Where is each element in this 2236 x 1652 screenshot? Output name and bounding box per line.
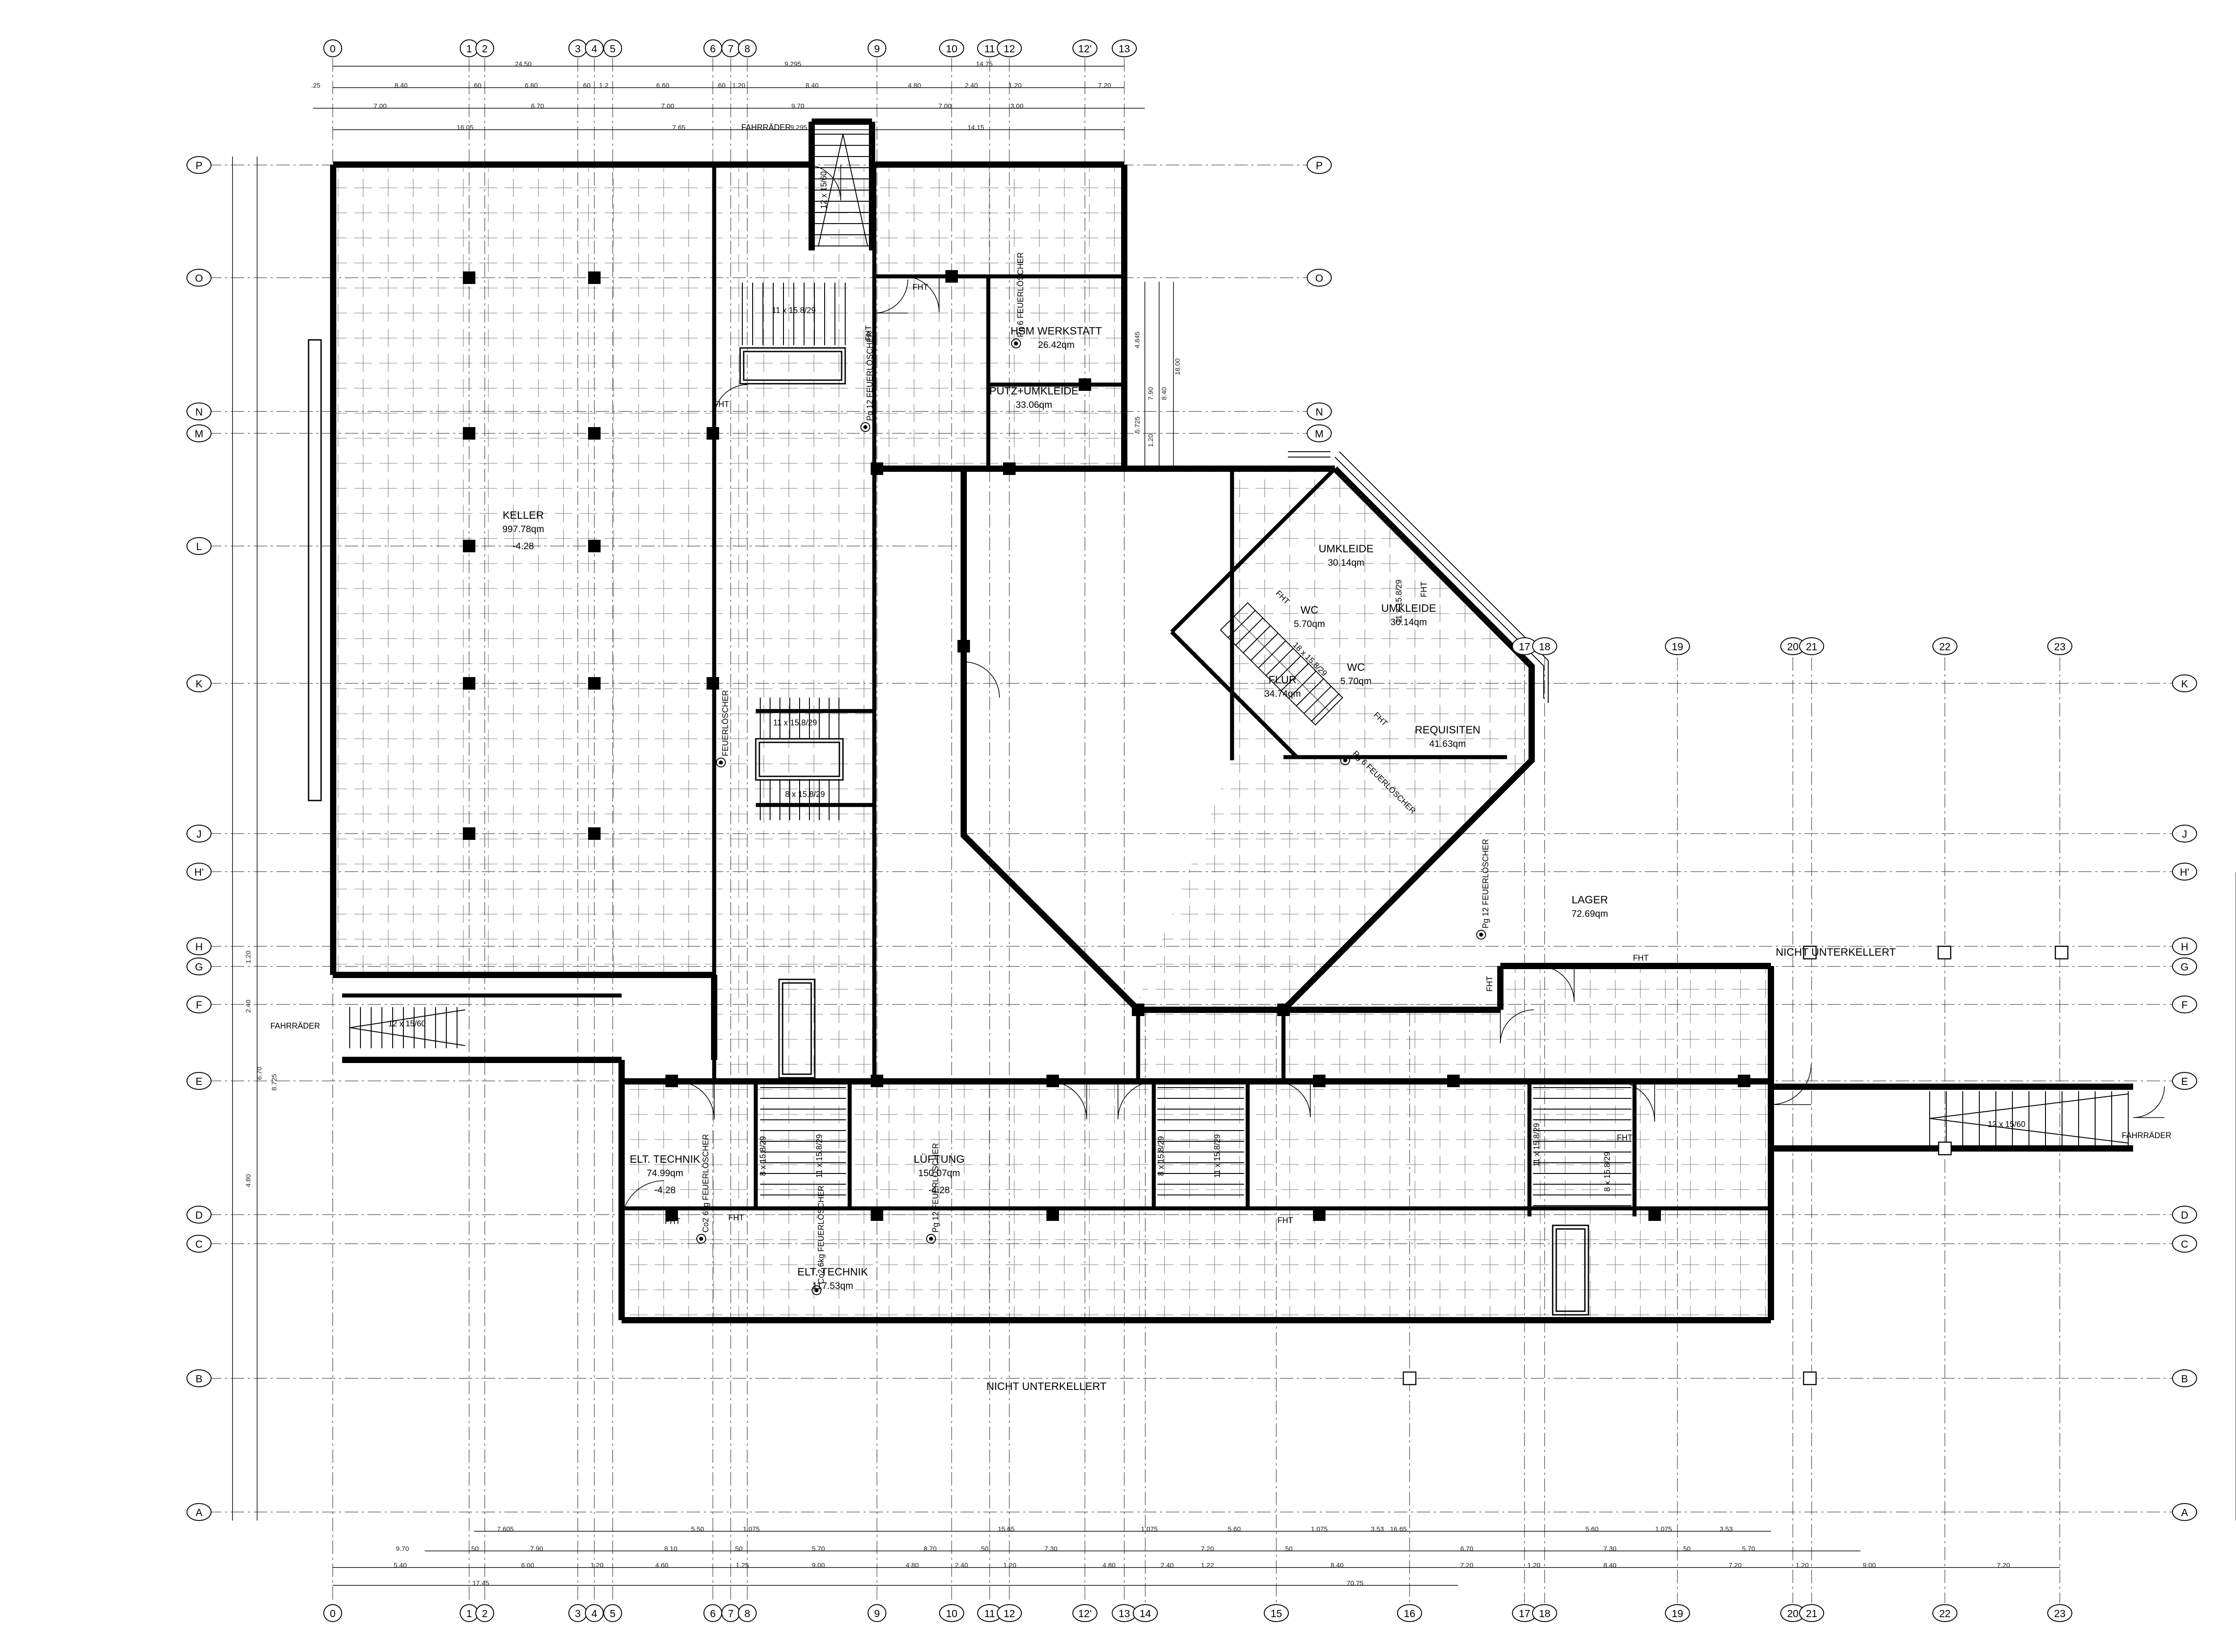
label: 4.60 xyxy=(655,1562,668,1569)
grid-bubble-label: A xyxy=(195,1507,203,1518)
label: 8.40 xyxy=(394,82,407,89)
column-hollow xyxy=(1403,1372,1416,1385)
grid-bubble-label: E xyxy=(2181,1076,2188,1087)
column-solid xyxy=(1313,1208,1326,1221)
grid-bubble-label: D xyxy=(2181,1209,2189,1221)
grid-bubble-B: B xyxy=(187,1370,211,1387)
label: 4.80 xyxy=(1102,1562,1115,1569)
grid-bubble-19: 19 xyxy=(1665,638,1690,655)
grid-bubble-label: 6 xyxy=(710,43,716,55)
label: 1.2 xyxy=(599,82,609,89)
grid-bubble-A: A xyxy=(187,1504,211,1521)
grid-bubble-P: P xyxy=(1307,157,1331,174)
label: 8.10 xyxy=(664,1545,677,1553)
label: FEUERLÖSCHER xyxy=(721,690,730,756)
label: 8 x 15.8/29 xyxy=(758,1136,767,1176)
grid-bubble-22: 22 xyxy=(1933,638,1957,655)
grid-bubble-O: O xyxy=(187,269,211,286)
grid-bubble-label: O xyxy=(1315,272,1323,284)
grid-bubble-label: 11 xyxy=(984,43,995,55)
label: 8 x 15.8/29 xyxy=(785,790,825,799)
label: 7.90 xyxy=(1147,387,1155,400)
grid-bubble-label: 5 xyxy=(610,1608,616,1619)
label: 5.70qm xyxy=(1294,619,1325,629)
label: 1.20 xyxy=(732,82,745,89)
label: 9.295 xyxy=(790,124,807,131)
label: PUTZ+UMKLEIDE xyxy=(989,385,1078,397)
label: .25 xyxy=(311,82,321,89)
grid-bubble-H': H' xyxy=(2172,863,2197,880)
column-solid xyxy=(707,427,719,440)
grid-bubble-label: D xyxy=(195,1209,203,1221)
grid-bubble-M: M xyxy=(1307,425,1331,442)
label: NICHT UNTERKELLERT xyxy=(987,1381,1107,1393)
label: FHT xyxy=(1633,953,1649,962)
label: Co2 6kg FEUERLÖSCHER xyxy=(701,1134,710,1233)
label: 7.20 xyxy=(1997,1562,2010,1569)
grid-bubble-label: J xyxy=(2182,828,2187,840)
label: 6.70 xyxy=(531,102,544,110)
label: KELLER xyxy=(503,509,544,521)
grid-bubble-19: 19 xyxy=(1665,1605,1690,1622)
label: 41.63qm xyxy=(1429,739,1466,749)
grid-bubble-label: 2 xyxy=(482,43,488,55)
label: 8.70 xyxy=(923,1545,936,1553)
grid-bubble-label: H xyxy=(2181,941,2189,953)
column-solid xyxy=(1447,1075,1460,1087)
label: WC xyxy=(1347,661,1365,674)
grid-bubble-8: 8 xyxy=(738,1605,756,1622)
grid-bubble-label: 19 xyxy=(1672,641,1683,652)
grid-bubble-label: K xyxy=(2181,678,2188,690)
grid-bubble-label: 3 xyxy=(575,43,581,55)
label: 2.40 xyxy=(245,1000,252,1012)
label: UMKLEIDE xyxy=(1381,602,1436,614)
column-solid xyxy=(665,1075,678,1087)
grid-bubble-label: 12 xyxy=(1004,43,1015,55)
grid-bubble-2: 2 xyxy=(476,1605,494,1622)
column-solid xyxy=(871,1208,883,1221)
grid-bubble-label: 6 xyxy=(710,1608,716,1619)
grid-bubble-K: K xyxy=(187,675,211,692)
label: 7.00 xyxy=(661,102,674,110)
column-solid xyxy=(1079,378,1091,391)
grid-bubble-label: 5 xyxy=(610,43,616,55)
label: 4.845 xyxy=(1134,331,1141,348)
label: 15.65 xyxy=(998,1525,1015,1533)
grid-bubble-12: 12 xyxy=(997,40,1021,57)
label: 70.75 xyxy=(1347,1580,1364,1587)
label: 12 x 15/60 xyxy=(1988,1120,2025,1129)
grid-bubble-label: 9 xyxy=(874,1608,880,1619)
grid-bubble-K: K xyxy=(2172,675,2197,692)
label: 8 x 15.8/29 xyxy=(1603,1152,1612,1191)
label: 8 x 15.8/29 xyxy=(1156,1136,1165,1176)
label: 2.40 xyxy=(955,1562,968,1569)
label: -4.28 xyxy=(654,1185,676,1195)
grid-bubble-A: A xyxy=(2172,1504,2197,1521)
label: 7.20 xyxy=(1728,1562,1741,1569)
column-solid xyxy=(1648,1208,1661,1221)
label: 14.15 xyxy=(967,124,984,131)
grid-bubble-label: M xyxy=(195,428,203,440)
grid-bubble-0: 0 xyxy=(324,40,342,57)
grid-bubble-label: H' xyxy=(194,866,203,878)
label: NICHT UNTERKELLERT xyxy=(1776,946,1896,958)
grid-bubble-label: H xyxy=(195,941,203,953)
label: Pg 12 FEUERLÖSCHER xyxy=(865,331,874,421)
grid-bubble-H: H xyxy=(187,938,211,955)
label: 2.40 xyxy=(965,82,978,89)
grid-bubble-label: 4 xyxy=(592,43,597,55)
label: 17.45 xyxy=(472,1580,489,1587)
grid-bubble-H': H' xyxy=(187,863,211,880)
grid-bubble-D: D xyxy=(187,1206,211,1223)
grid-bubble-label: 22 xyxy=(1939,1608,1951,1619)
label: 6.60 xyxy=(656,82,669,89)
column-solid xyxy=(1313,1075,1326,1087)
column-solid xyxy=(588,677,601,690)
grid-bubble-label: 4 xyxy=(592,1608,597,1619)
grid-bubble-18: 18 xyxy=(1533,1605,1557,1622)
grid-bubble-label: B xyxy=(2181,1373,2188,1385)
left-lightwell xyxy=(309,340,321,801)
label: FHT xyxy=(714,400,729,409)
label: FHT xyxy=(1419,582,1428,597)
label: 3.53 xyxy=(1371,1525,1384,1533)
grid-bubble-4: 4 xyxy=(585,40,603,57)
column-solid xyxy=(588,271,601,284)
grid-bubble-label: M xyxy=(1315,428,1323,440)
column-solid xyxy=(463,427,475,440)
label: FAHRRÄDER xyxy=(2122,1131,2171,1140)
grid-bubble-H: H xyxy=(2172,938,2197,955)
label: 3.00 xyxy=(1010,102,1023,110)
label: 5.70qm xyxy=(1340,676,1372,686)
label: .60 xyxy=(581,82,591,89)
label: 1.20 xyxy=(1796,1562,1808,1569)
label: 1.075 xyxy=(1141,1525,1158,1533)
grid-bubble-3: 3 xyxy=(569,40,587,57)
grid-bubble-O: O xyxy=(1307,269,1331,286)
grid-bubble-label: 10 xyxy=(946,1608,957,1619)
grid-bubble-label: E xyxy=(195,1076,202,1087)
label: .50 xyxy=(733,1545,743,1553)
grid-bubble-13: 13 xyxy=(1112,40,1136,57)
label: 8.40 xyxy=(1160,387,1168,400)
label: 7.30 xyxy=(1044,1545,1057,1553)
grid-bubble-label: G xyxy=(2181,961,2189,973)
label: 1.22 xyxy=(1201,1562,1214,1569)
label: -4.28 xyxy=(512,541,534,551)
label: 1.20 xyxy=(1008,82,1021,89)
label: 7.00 xyxy=(938,102,951,110)
label: 12 x 15/60 xyxy=(388,1019,426,1028)
grid-bubble-3: 3 xyxy=(569,1605,587,1622)
grid-bubble-12': 12' xyxy=(1073,40,1097,57)
column-solid xyxy=(588,540,601,552)
grid-bubble-label: 13 xyxy=(1118,1608,1130,1619)
label: 5.50 xyxy=(691,1525,704,1533)
label: 1.075 xyxy=(743,1525,760,1533)
label: FHT xyxy=(665,1217,681,1226)
grid-bubble-7: 7 xyxy=(722,40,740,57)
label: .50 xyxy=(1283,1545,1293,1553)
grid-bubble-21: 21 xyxy=(1800,1605,1824,1622)
grid-bubble-F: F xyxy=(187,996,211,1013)
label: 6.70 xyxy=(1460,1545,1473,1553)
label: 9.70 xyxy=(791,102,804,110)
label: 1.20 xyxy=(1527,1562,1540,1569)
grid-bubble-label: 18 xyxy=(1539,641,1550,652)
label: 7.65 xyxy=(672,124,685,131)
label: 11 x 15.8/29 xyxy=(772,306,816,315)
label: 7.00 xyxy=(373,102,386,110)
label: .50 xyxy=(470,1545,479,1553)
label: 1.20 xyxy=(1003,1562,1016,1569)
grid-bubble-label: 7 xyxy=(728,43,734,55)
grid-bubble-label: 8 xyxy=(745,1608,750,1619)
grid-bubble-label: N xyxy=(195,406,203,418)
label: FHT xyxy=(728,1213,744,1222)
label: 7.20 xyxy=(1460,1562,1473,1569)
grid-bubble-label: 10 xyxy=(946,43,957,55)
grid-bubble-7: 7 xyxy=(722,1605,740,1622)
label: 11 x 15.8/29 xyxy=(773,718,817,727)
label: 2.40 xyxy=(1160,1562,1173,1569)
grid-bubble-6: 6 xyxy=(704,40,722,57)
grid-bubble-16: 16 xyxy=(1397,1605,1422,1622)
grid-bubble-5: 5 xyxy=(604,40,622,57)
column-solid xyxy=(588,827,601,840)
column-solid xyxy=(1738,1075,1750,1087)
column-hollow xyxy=(2055,946,2068,959)
grid-bubble-C: C xyxy=(187,1235,211,1252)
label: 6.80 xyxy=(525,82,538,89)
grid-bubble-2: 2 xyxy=(476,40,494,57)
label: 7.90 xyxy=(530,1545,543,1553)
label: .60 xyxy=(472,82,482,89)
label: 3.53 xyxy=(1719,1525,1732,1533)
label: 5.70 xyxy=(812,1545,825,1553)
label: 9.70 xyxy=(396,1545,409,1553)
label: 1.25 xyxy=(736,1562,749,1569)
label: 18.00 xyxy=(1174,358,1182,375)
grid-bubble-G: G xyxy=(2172,958,2197,975)
column-solid xyxy=(707,677,719,690)
label: .60 xyxy=(716,82,726,89)
label: 11 x 15.8/29 xyxy=(1213,1134,1222,1178)
grid-bubble-N: N xyxy=(187,403,211,420)
label: UMKLEIDE xyxy=(1319,543,1374,555)
label: Pg 12 FEUERLÖSCHER xyxy=(931,1143,940,1233)
label: 33.06qm xyxy=(1016,400,1052,410)
label: 5.40 xyxy=(394,1562,407,1569)
grid-bubble-label: 17 xyxy=(1519,641,1530,652)
grid-bubble-label: 12' xyxy=(1078,43,1092,55)
grid-bubble-B: B xyxy=(2172,1370,2197,1387)
grid-bubble-label: 21 xyxy=(1806,641,1817,652)
grid-bubble-label: 17 xyxy=(1519,1608,1530,1619)
label: 7.605 xyxy=(497,1525,514,1533)
column-solid xyxy=(871,462,883,475)
grid-bubble-label: 23 xyxy=(2054,641,2066,652)
grid-bubble-P: P xyxy=(187,157,211,174)
grid-bubble-23: 23 xyxy=(2048,638,2072,655)
label: Pg 12 FEUERLÖSCHER xyxy=(1481,839,1490,928)
grid-bubble-L: L xyxy=(187,538,211,555)
label: .50 xyxy=(979,1545,989,1553)
label: 6.70 xyxy=(256,1067,263,1080)
label: 1.20 xyxy=(245,950,252,963)
grid-bubble-label: 0 xyxy=(330,1608,336,1619)
label: FHT xyxy=(1278,1216,1293,1225)
grid-bubble-12': 12' xyxy=(1073,1605,1097,1622)
grid-bubble-9: 9 xyxy=(868,40,886,57)
grid-bubble-label: 23 xyxy=(2054,1608,2066,1619)
label: 11 x 15.8/29 xyxy=(1532,1123,1541,1167)
grid-bubble-label: B xyxy=(195,1373,202,1385)
label: FLUR xyxy=(1269,674,1297,686)
label: 9.295 xyxy=(784,60,801,68)
grid-bubble-label: 3 xyxy=(575,1608,581,1619)
column-hollow xyxy=(1938,946,1951,959)
grid-bubble-N: N xyxy=(1307,403,1331,420)
grid-bubble-label: 18 xyxy=(1539,1608,1550,1619)
label: 34.74qm xyxy=(1264,689,1301,699)
column-hollow xyxy=(1804,1372,1816,1385)
column-solid xyxy=(588,427,601,440)
column-solid xyxy=(957,640,970,652)
label: 4.80 xyxy=(908,82,921,89)
label: 14.75 xyxy=(976,60,993,68)
label: 30.14qm xyxy=(1328,558,1364,568)
label: 7.20 xyxy=(1098,82,1111,89)
grid-bubble-21: 21 xyxy=(1800,638,1824,655)
label: 4.80 xyxy=(245,1174,252,1187)
grid-bubble-label: P xyxy=(1316,160,1322,171)
grid-bubble-G: G xyxy=(187,958,211,975)
label: 24.50 xyxy=(515,60,532,68)
grid-bubble-label: 9 xyxy=(874,43,880,55)
label: 74.99qm xyxy=(647,1168,683,1178)
plan-canvas: 0011223344556677889910101111121212'12'13… xyxy=(0,0,2236,1652)
label: 9.00 xyxy=(812,1562,825,1569)
label: 5.70 xyxy=(1742,1545,1755,1553)
label: Co2 6kg FEUERLÖSCHER xyxy=(817,1186,826,1284)
grid-bubble-E: E xyxy=(187,1072,211,1089)
label: 5.725 xyxy=(1134,416,1141,433)
label: 26.42qm xyxy=(1038,340,1075,350)
label: FHT xyxy=(1485,976,1494,992)
label: FHT xyxy=(913,283,928,292)
column-solid xyxy=(1132,1004,1144,1016)
label: 11 x 15.8/29 xyxy=(815,1134,824,1178)
grid-bubble-label: 21 xyxy=(1806,1608,1817,1619)
label: REQUISITEN xyxy=(1415,724,1481,736)
grid-bubble-label: 0 xyxy=(330,43,336,55)
grid-bubble-label: 19 xyxy=(1672,1608,1683,1619)
label: 8.40 xyxy=(1603,1562,1616,1569)
label: ELT. TECHNIK xyxy=(797,1266,868,1278)
label: 1.075 xyxy=(1311,1525,1328,1533)
label: LAGER xyxy=(1571,894,1608,906)
label: FAHRRÄDER xyxy=(270,1021,320,1030)
grid-bubble-8: 8 xyxy=(738,40,756,57)
grid-bubble-label: F xyxy=(196,999,202,1011)
label: 1.20 xyxy=(590,1562,603,1569)
grid-bubble-label: 20 xyxy=(1787,1608,1799,1619)
grid-bubble-F: F xyxy=(2172,996,2197,1013)
grid-bubble-0: 0 xyxy=(324,1605,342,1622)
grid-bubble-label: 2 xyxy=(482,1608,488,1619)
grid-bubble-label: C xyxy=(195,1238,203,1250)
label: 9.00 xyxy=(1863,1562,1876,1569)
grid-bubble-9: 9 xyxy=(868,1605,886,1622)
column-solid xyxy=(463,677,475,690)
grid-bubble-4: 4 xyxy=(585,1605,603,1622)
grid-bubble-label: H' xyxy=(2180,866,2189,878)
label: 7.20 xyxy=(1201,1545,1214,1553)
column-solid xyxy=(463,827,475,840)
grid-bubble-label: 22 xyxy=(1939,641,1951,652)
column-solid xyxy=(1003,462,1016,475)
grid-bubble-18: 18 xyxy=(1533,638,1557,655)
grid-bubble-10: 10 xyxy=(940,40,964,57)
grid-bubble-label: 12 xyxy=(1004,1608,1015,1619)
column-solid xyxy=(1046,1075,1059,1087)
floorplan-sheet: 0011223344556677889910101111121212'12'13… xyxy=(0,0,2236,1652)
label: 8.725 xyxy=(271,1074,278,1091)
label: 5.60 xyxy=(1228,1525,1241,1533)
label: Pg 6 FEUERLÖSCHER xyxy=(1016,252,1025,337)
grid-bubble-label: 1 xyxy=(466,43,472,55)
label: 8.40 xyxy=(805,82,818,89)
label: FHT xyxy=(1617,1133,1633,1142)
grid-bubble-15: 15 xyxy=(1264,1605,1288,1622)
grid-bubble-label: P xyxy=(195,160,202,171)
label: 1.075 xyxy=(1655,1525,1672,1533)
grid-bubble-label: N xyxy=(1316,406,1323,418)
label: 72.69qm xyxy=(1571,909,1608,919)
stair-treads xyxy=(1930,1091,2128,1146)
label: 5.60 xyxy=(1585,1525,1598,1533)
grid-bubble-label: J xyxy=(196,828,202,840)
grid-bubble-22: 22 xyxy=(1933,1605,1957,1622)
grid-bubble-label: 14 xyxy=(1139,1608,1151,1619)
grid-bubble-label: 8 xyxy=(745,43,750,55)
grid-bubble-label: 16 xyxy=(1404,1608,1415,1619)
grid-bubble-label: L xyxy=(196,541,202,552)
door-swing-arc xyxy=(2133,1086,2164,1118)
grid-bubble-label: 11 xyxy=(984,1608,995,1619)
grid-bubble-label: A xyxy=(2181,1507,2188,1518)
grid-bubble-label: 1 xyxy=(466,1608,472,1619)
column-solid xyxy=(1277,1004,1290,1016)
label: FAHRRÄDER xyxy=(741,123,791,132)
grid-bubble-13: 13 xyxy=(1112,1605,1136,1622)
label: 16.65 xyxy=(1390,1525,1407,1533)
label: ELT. TECHNIK xyxy=(630,1153,700,1165)
label: 11 x 15.8/29 xyxy=(1394,580,1403,623)
grid-bubble-5: 5 xyxy=(604,1605,622,1622)
grid-bubble-10: 10 xyxy=(940,1605,964,1622)
grid-bubble-label: C xyxy=(2181,1238,2189,1250)
grid-bubble-23: 23 xyxy=(2048,1605,2072,1622)
column-solid xyxy=(1046,1208,1059,1221)
grid-bubble-label: 20 xyxy=(1787,641,1799,652)
grid-bubble-label: 12' xyxy=(1078,1608,1092,1619)
